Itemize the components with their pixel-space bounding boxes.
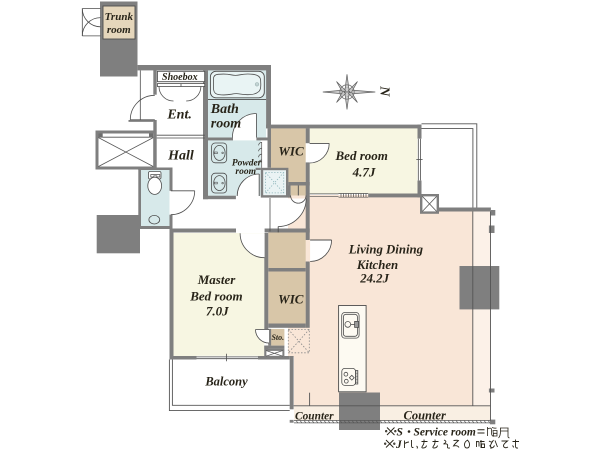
svg-text:7.0J: 7.0J: [206, 304, 229, 319]
svg-text:room: room: [235, 167, 256, 177]
svg-text:Balcony: Balcony: [204, 375, 248, 389]
svg-text:Bed room: Bed room: [335, 148, 388, 163]
svg-text:room: room: [107, 24, 131, 36]
svg-text:Hall: Hall: [167, 149, 194, 164]
svg-text:Ent.: Ent.: [166, 107, 192, 122]
svg-text:WIC: WIC: [278, 144, 304, 159]
svg-text:Counter: Counter: [404, 409, 447, 423]
svg-text:Counter: Counter: [295, 410, 334, 422]
svg-text:room: room: [211, 116, 241, 131]
svg-text:N: N: [377, 85, 392, 97]
svg-text:24.2J: 24.2J: [359, 272, 389, 286]
svg-text:Master: Master: [197, 272, 237, 287]
svg-text:WIC: WIC: [278, 292, 304, 307]
svg-text:Bath: Bath: [210, 102, 239, 117]
svg-text:S: S: [397, 426, 403, 438]
svg-text:J: J: [395, 439, 403, 450]
svg-text:Bed room: Bed room: [189, 288, 242, 303]
svg-text:4.7J: 4.7J: [352, 165, 376, 180]
svg-text:Service room: Service room: [414, 426, 476, 438]
svg-text:Living Dining: Living Dining: [348, 242, 424, 256]
svg-text:Trunk: Trunk: [105, 11, 134, 23]
svg-text:Sto.: Sto.: [271, 333, 284, 342]
svg-text:Kitchen: Kitchen: [356, 258, 398, 272]
svg-text:Shoebox: Shoebox: [162, 72, 198, 83]
